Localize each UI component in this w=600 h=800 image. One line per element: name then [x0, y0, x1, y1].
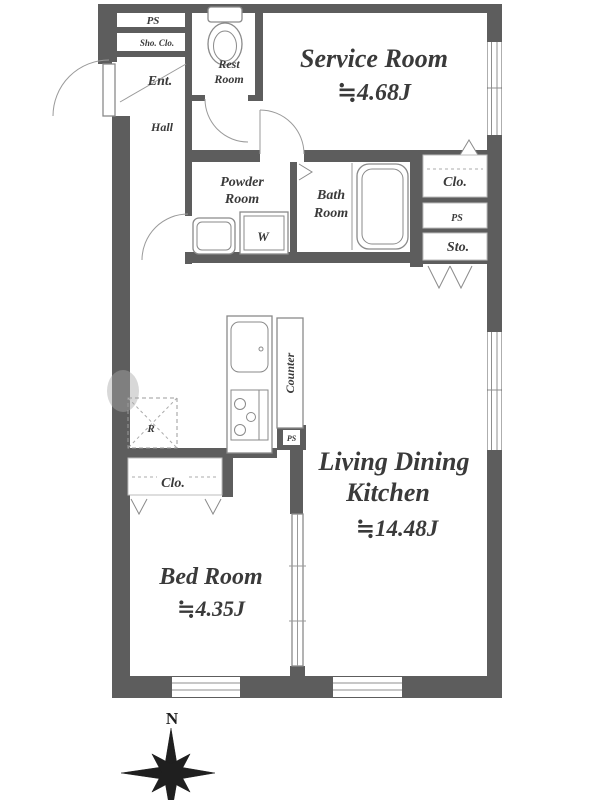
label-closet-mid: Clo. — [443, 175, 467, 190]
label-service-size: ≒4.68J — [337, 80, 412, 106]
label-bath-1: Bath — [316, 188, 345, 203]
compass-rose: N — [121, 709, 215, 800]
label-washer: W — [257, 229, 270, 244]
entrance-door — [53, 60, 130, 116]
compass-north-label: N — [166, 709, 179, 728]
label-bath-2: Room — [313, 206, 348, 221]
window-bottom-left — [172, 677, 240, 697]
label-closet-bedroom: Clo. — [161, 476, 185, 491]
wall-pipe-bump — [107, 370, 139, 412]
service-room-door — [260, 110, 304, 154]
label-bedroom-size: ≒4.35J — [177, 596, 246, 621]
floor-plan-svg: PS Sho. Clo. Ent. Hall Rest Room Service… — [0, 0, 600, 800]
label-ldk-size: ≒14.48J — [356, 516, 440, 541]
powder-room-door — [142, 214, 188, 260]
bath-folding-door — [299, 164, 312, 180]
label-bedroom: Bed Room — [158, 564, 262, 590]
bathtub-fixture — [352, 163, 408, 250]
label-powder-1: Powder — [220, 175, 264, 190]
label-counter: Counter — [283, 352, 297, 393]
label-restroom-2: Room — [213, 72, 243, 86]
bedroom-closet-bifold-right — [205, 499, 221, 514]
storage-bifold-left — [428, 266, 450, 288]
restroom-door — [205, 99, 248, 142]
closet-mid-bifold — [460, 140, 478, 155]
powder-sink — [193, 218, 235, 254]
bedroom-sliding-door — [289, 514, 306, 666]
kitchen-unit — [227, 316, 272, 453]
floor-plan-image: PS Sho. Clo. Ent. Hall Rest Room Service… — [0, 0, 600, 800]
window-right-bottom — [488, 332, 502, 450]
label-ps-kitchen: PS — [287, 434, 297, 443]
label-storage: Sto. — [447, 240, 469, 255]
label-entrance: Ent. — [147, 74, 173, 89]
label-ps-mid: PS — [451, 213, 463, 224]
bedroom-closet-bifold-left — [131, 499, 147, 514]
label-hall: Hall — [150, 120, 174, 134]
window-right-top — [488, 42, 502, 135]
window-bottom-right — [333, 677, 402, 697]
label-refrigerator: R — [146, 423, 154, 435]
label-service-room: Service Room — [300, 44, 448, 73]
label-ldk-2: Kitchen — [345, 478, 430, 507]
label-restroom-1: Rest — [217, 57, 240, 71]
label-powder-2: Room — [224, 192, 259, 207]
label-ldk-1: Living Dining — [318, 447, 470, 476]
storage-bifold-right — [450, 266, 472, 288]
label-shoe-closet: Sho. Clo. — [140, 38, 174, 48]
label-ps-top: PS — [147, 15, 160, 27]
